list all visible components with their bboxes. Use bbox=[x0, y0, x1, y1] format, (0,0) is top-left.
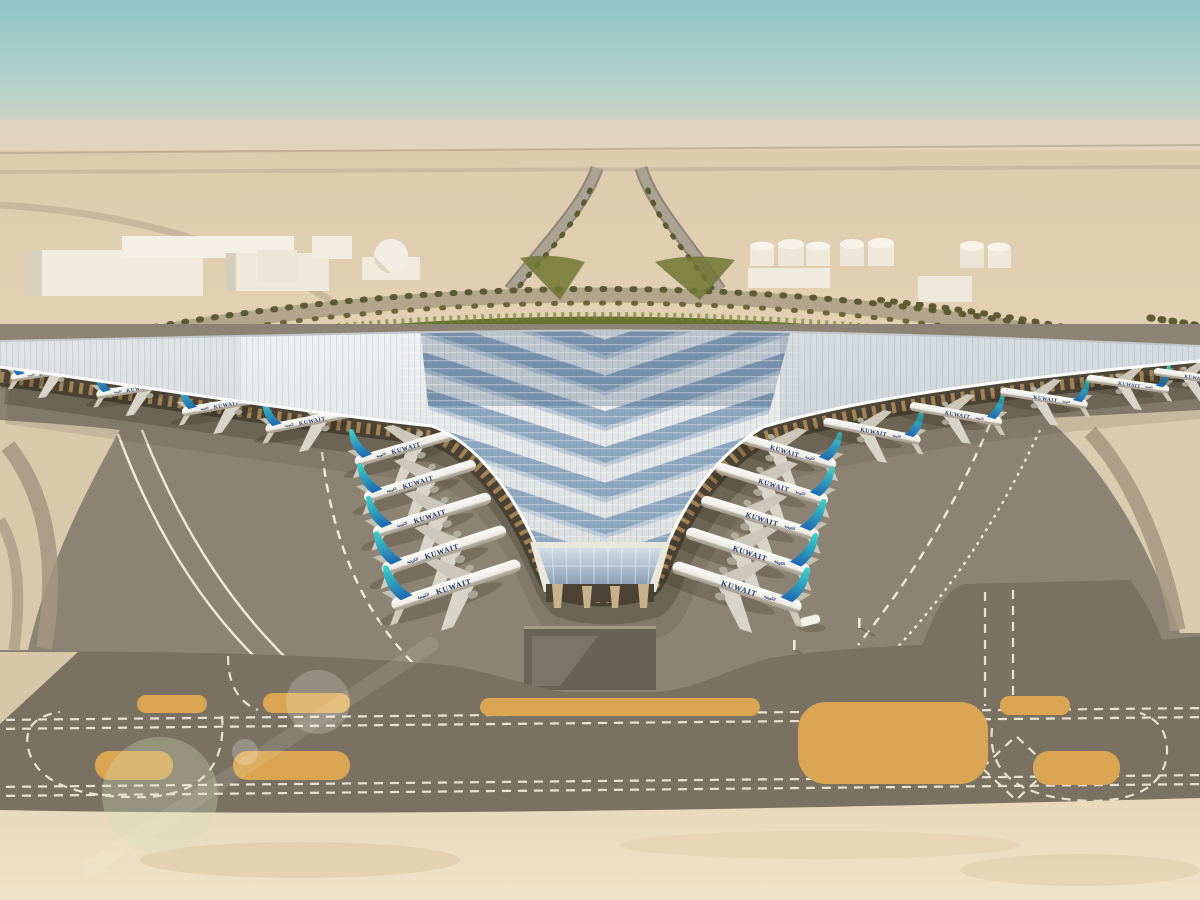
sand-mottle bbox=[620, 831, 1020, 859]
tank-row bbox=[750, 238, 1011, 268]
sand-mottle bbox=[960, 854, 1200, 886]
airport-aerial-rendering: الكويتية KUWAIT الكويتية KUWAIT bbox=[0, 0, 1200, 900]
island bbox=[798, 702, 988, 784]
tank-farm-building bbox=[748, 268, 830, 288]
flare-circle bbox=[102, 737, 218, 853]
light-pole bbox=[793, 640, 796, 650]
rendering-canvas: الكويتية KUWAIT الكويتية KUWAIT bbox=[0, 0, 1200, 900]
support-building bbox=[312, 236, 352, 259]
service-ramp bbox=[524, 626, 656, 690]
light-pole bbox=[858, 618, 861, 628]
support-building bbox=[257, 250, 297, 282]
warehouse-shadow-face bbox=[226, 253, 236, 291]
island bbox=[1000, 696, 1070, 715]
ramp-lip bbox=[524, 626, 656, 629]
sand-mottle bbox=[140, 842, 460, 878]
tank-farm-building bbox=[918, 276, 972, 302]
island bbox=[137, 695, 207, 713]
island bbox=[1033, 751, 1120, 785]
island bbox=[480, 698, 760, 716]
terminal-apex bbox=[530, 542, 670, 608]
warehouse-shadow-face bbox=[28, 250, 42, 296]
flare-circle bbox=[286, 670, 350, 734]
flare-circle bbox=[232, 739, 258, 765]
